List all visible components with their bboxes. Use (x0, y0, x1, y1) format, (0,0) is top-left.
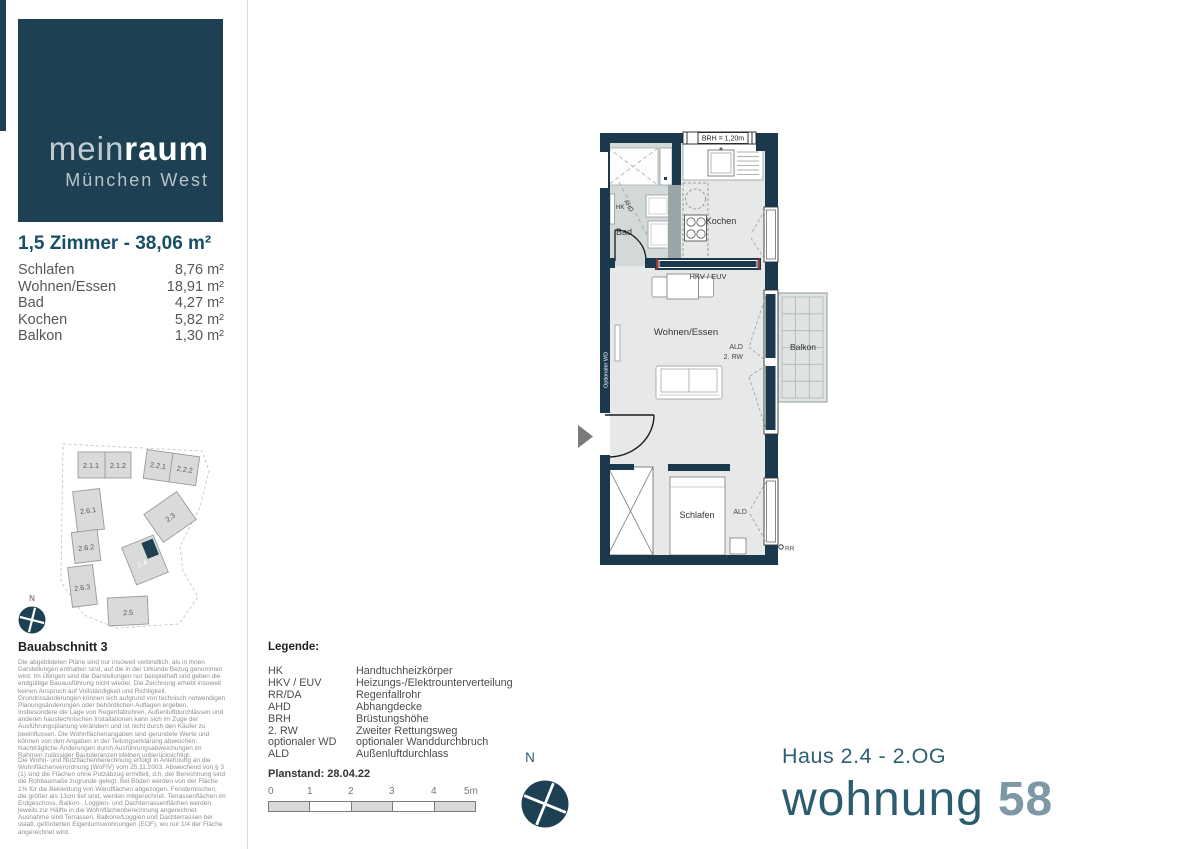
label-brh: BRH = 1,20m (702, 136, 744, 143)
site-building-2-6-1: 2.6.1 (73, 488, 105, 532)
scale-bar: 0 1 2 3 4 5m (268, 786, 476, 812)
scale-tick: 1 (307, 786, 313, 797)
rr-marker: RR (779, 545, 795, 553)
room-label-bad: Bad (616, 227, 632, 237)
label-rr: RR (785, 546, 795, 553)
brand-name-light: mein (49, 130, 125, 167)
room-label-balkon: Balkon (790, 342, 816, 352)
table-row: Kochen5,82 m² (18, 312, 224, 329)
legend-meaning: Außenluftdurchlass (356, 749, 508, 761)
room-area-table: Schlafen8,76 m² Wohnen/Essen18,91 m² Bad… (18, 262, 224, 345)
legend-meaning: Abhangdecke (356, 702, 508, 714)
room-label: Bad (18, 295, 44, 312)
room-label: Schlafen (18, 262, 74, 279)
legend-abbr: RR/DA (268, 690, 356, 702)
label-ald: ALD (729, 344, 743, 351)
legend-row: AHDAbhangdecke (268, 702, 508, 714)
wall-niche (599, 152, 608, 188)
legend-row: RR/DARegenfallrohr (268, 690, 508, 702)
scale-tick: 3 (389, 786, 395, 797)
room-area: 4,27 m² (175, 295, 224, 312)
room-area: 5,82 m² (175, 312, 224, 329)
brand-name-bold: raum (124, 130, 209, 167)
building-label: 2.1.1 (83, 461, 99, 470)
legend-abbr: ALD (268, 749, 356, 761)
room-area: 8,76 m² (175, 262, 224, 279)
table-row: Bad4,27 m² (18, 295, 224, 312)
label-2rw: 2. RW (724, 354, 744, 361)
room-label: Wohnen/Essen (18, 279, 116, 296)
kitchen-sink (708, 150, 734, 176)
scale-strip (268, 801, 476, 812)
legend-meaning: Brüstungshöhe (356, 714, 508, 726)
kitchen-top-window: BRH = 1,20m (683, 132, 756, 144)
site-building-2-6-2: 2.6.2 (71, 530, 101, 564)
scale-tick: 2 (348, 786, 354, 797)
table-row: Schlafen8,76 m² (18, 262, 224, 279)
site-building-2-4-highlighted: 2.4 (122, 535, 169, 585)
building-label: 2.1.2 (110, 461, 126, 470)
legend-row: ALDAußenluftdurchlass (268, 749, 508, 761)
site-plan: 2.1.1 2.1.2 2.2.1 2.2.2 2.6.1 2.6.2 2.6.… (50, 440, 240, 645)
compass-north-label: N (525, 750, 535, 765)
site-building-2-3: 2.3 (144, 492, 196, 543)
apartment-number: 58 (998, 773, 1053, 826)
plan-sheet: meinraum München West 1,5 Zimmer - 38,06… (0, 0, 1200, 849)
table-row: Balkon1,30 m² (18, 328, 224, 345)
legend-meaning: Regenfallrohr (356, 690, 508, 702)
partition-wall (668, 464, 730, 471)
scale-tick: 0 (268, 786, 274, 797)
brand-logo: meinraum München West (18, 19, 223, 222)
nightstand (730, 538, 746, 554)
label-optionaler-wd: Optionaler WD (604, 352, 610, 388)
room-label-kochen: Kochen (706, 216, 737, 226)
brand-subtitle: München West (49, 171, 209, 191)
label-ald-bedroom: ALD (733, 509, 747, 516)
room-label-schlafen: Schlafen (679, 510, 714, 520)
plan-date: Planstand: 28.04.22 (268, 768, 370, 780)
room-area: 1,30 m² (175, 328, 224, 345)
apartment-word: wohnung (782, 773, 984, 826)
towel-radiator (610, 194, 615, 224)
building-floor-title: Haus 2.4 - 2.OG (782, 744, 1182, 769)
label-hk: HK (616, 205, 624, 211)
bedroom-area: Schlafen (608, 467, 746, 555)
sidebar-divider (247, 0, 248, 849)
legend: Legende: HKHandtuchheizkörper HKV / EUVH… (268, 641, 508, 761)
room-label: Balkon (18, 328, 62, 345)
label-hkv-euv: HKV / EUV (689, 272, 726, 281)
legend-row: BRHBrüstungshöhe (268, 714, 508, 726)
site-building-2-5: 2.5 (107, 596, 148, 626)
balcony-area: Balkon (778, 293, 827, 402)
scale-tick: 5m (464, 786, 478, 797)
disclaimer-paragraph-2: Die Wohn- und Nutzflächenberechnung erfo… (18, 757, 226, 836)
toilet (648, 221, 671, 248)
apartment-name: wohnung58 (782, 772, 1182, 827)
table-row: Wohnen/Essen18,91 m² (18, 279, 224, 296)
legend-abbr: BRH (268, 714, 356, 726)
chair (652, 277, 667, 297)
title-block: Haus 2.4 - 2.OG wohnung58 (782, 744, 1182, 827)
entrance-arrow-icon (578, 425, 593, 448)
site-compass-icon: N (12, 591, 56, 639)
compass-north-label: N (29, 594, 35, 603)
room-label-wohnen: Wohnen/Essen (654, 327, 718, 338)
scale-tick: 4 (431, 786, 437, 797)
section-title: Bauabschnitt 3 (18, 640, 108, 654)
compass-icon: N (513, 742, 577, 837)
apartment-title: 1,5 Zimmer - 38,06 m² (18, 233, 211, 255)
legend-title: Legende: (268, 641, 508, 653)
building-label: 2.5 (123, 608, 133, 618)
room-area: 18,91 m² (167, 279, 224, 296)
room-label: Kochen (18, 312, 67, 329)
radiator (615, 325, 620, 361)
scale-tick-labels: 0 1 2 3 4 5m (268, 786, 476, 799)
kitchen-back-wall (668, 185, 681, 266)
disclaimer-paragraph-1: Die abgebildeten Pläne sind nur insoweit… (18, 659, 226, 759)
corner-accent-strip (0, 0, 6, 131)
legend-abbr: AHD (268, 702, 356, 714)
site-building-2-6-3: 2.6.3 (68, 565, 98, 608)
brand-logo-text: meinraum München West (49, 131, 209, 191)
brand-name: meinraum (49, 131, 209, 167)
site-building-2-2: 2.2.1 2.2.2 (143, 450, 200, 486)
floor-plan: Balkon AHD HK Bad (575, 118, 840, 575)
site-building-2-1: 2.1.1 2.1.2 (78, 452, 131, 478)
